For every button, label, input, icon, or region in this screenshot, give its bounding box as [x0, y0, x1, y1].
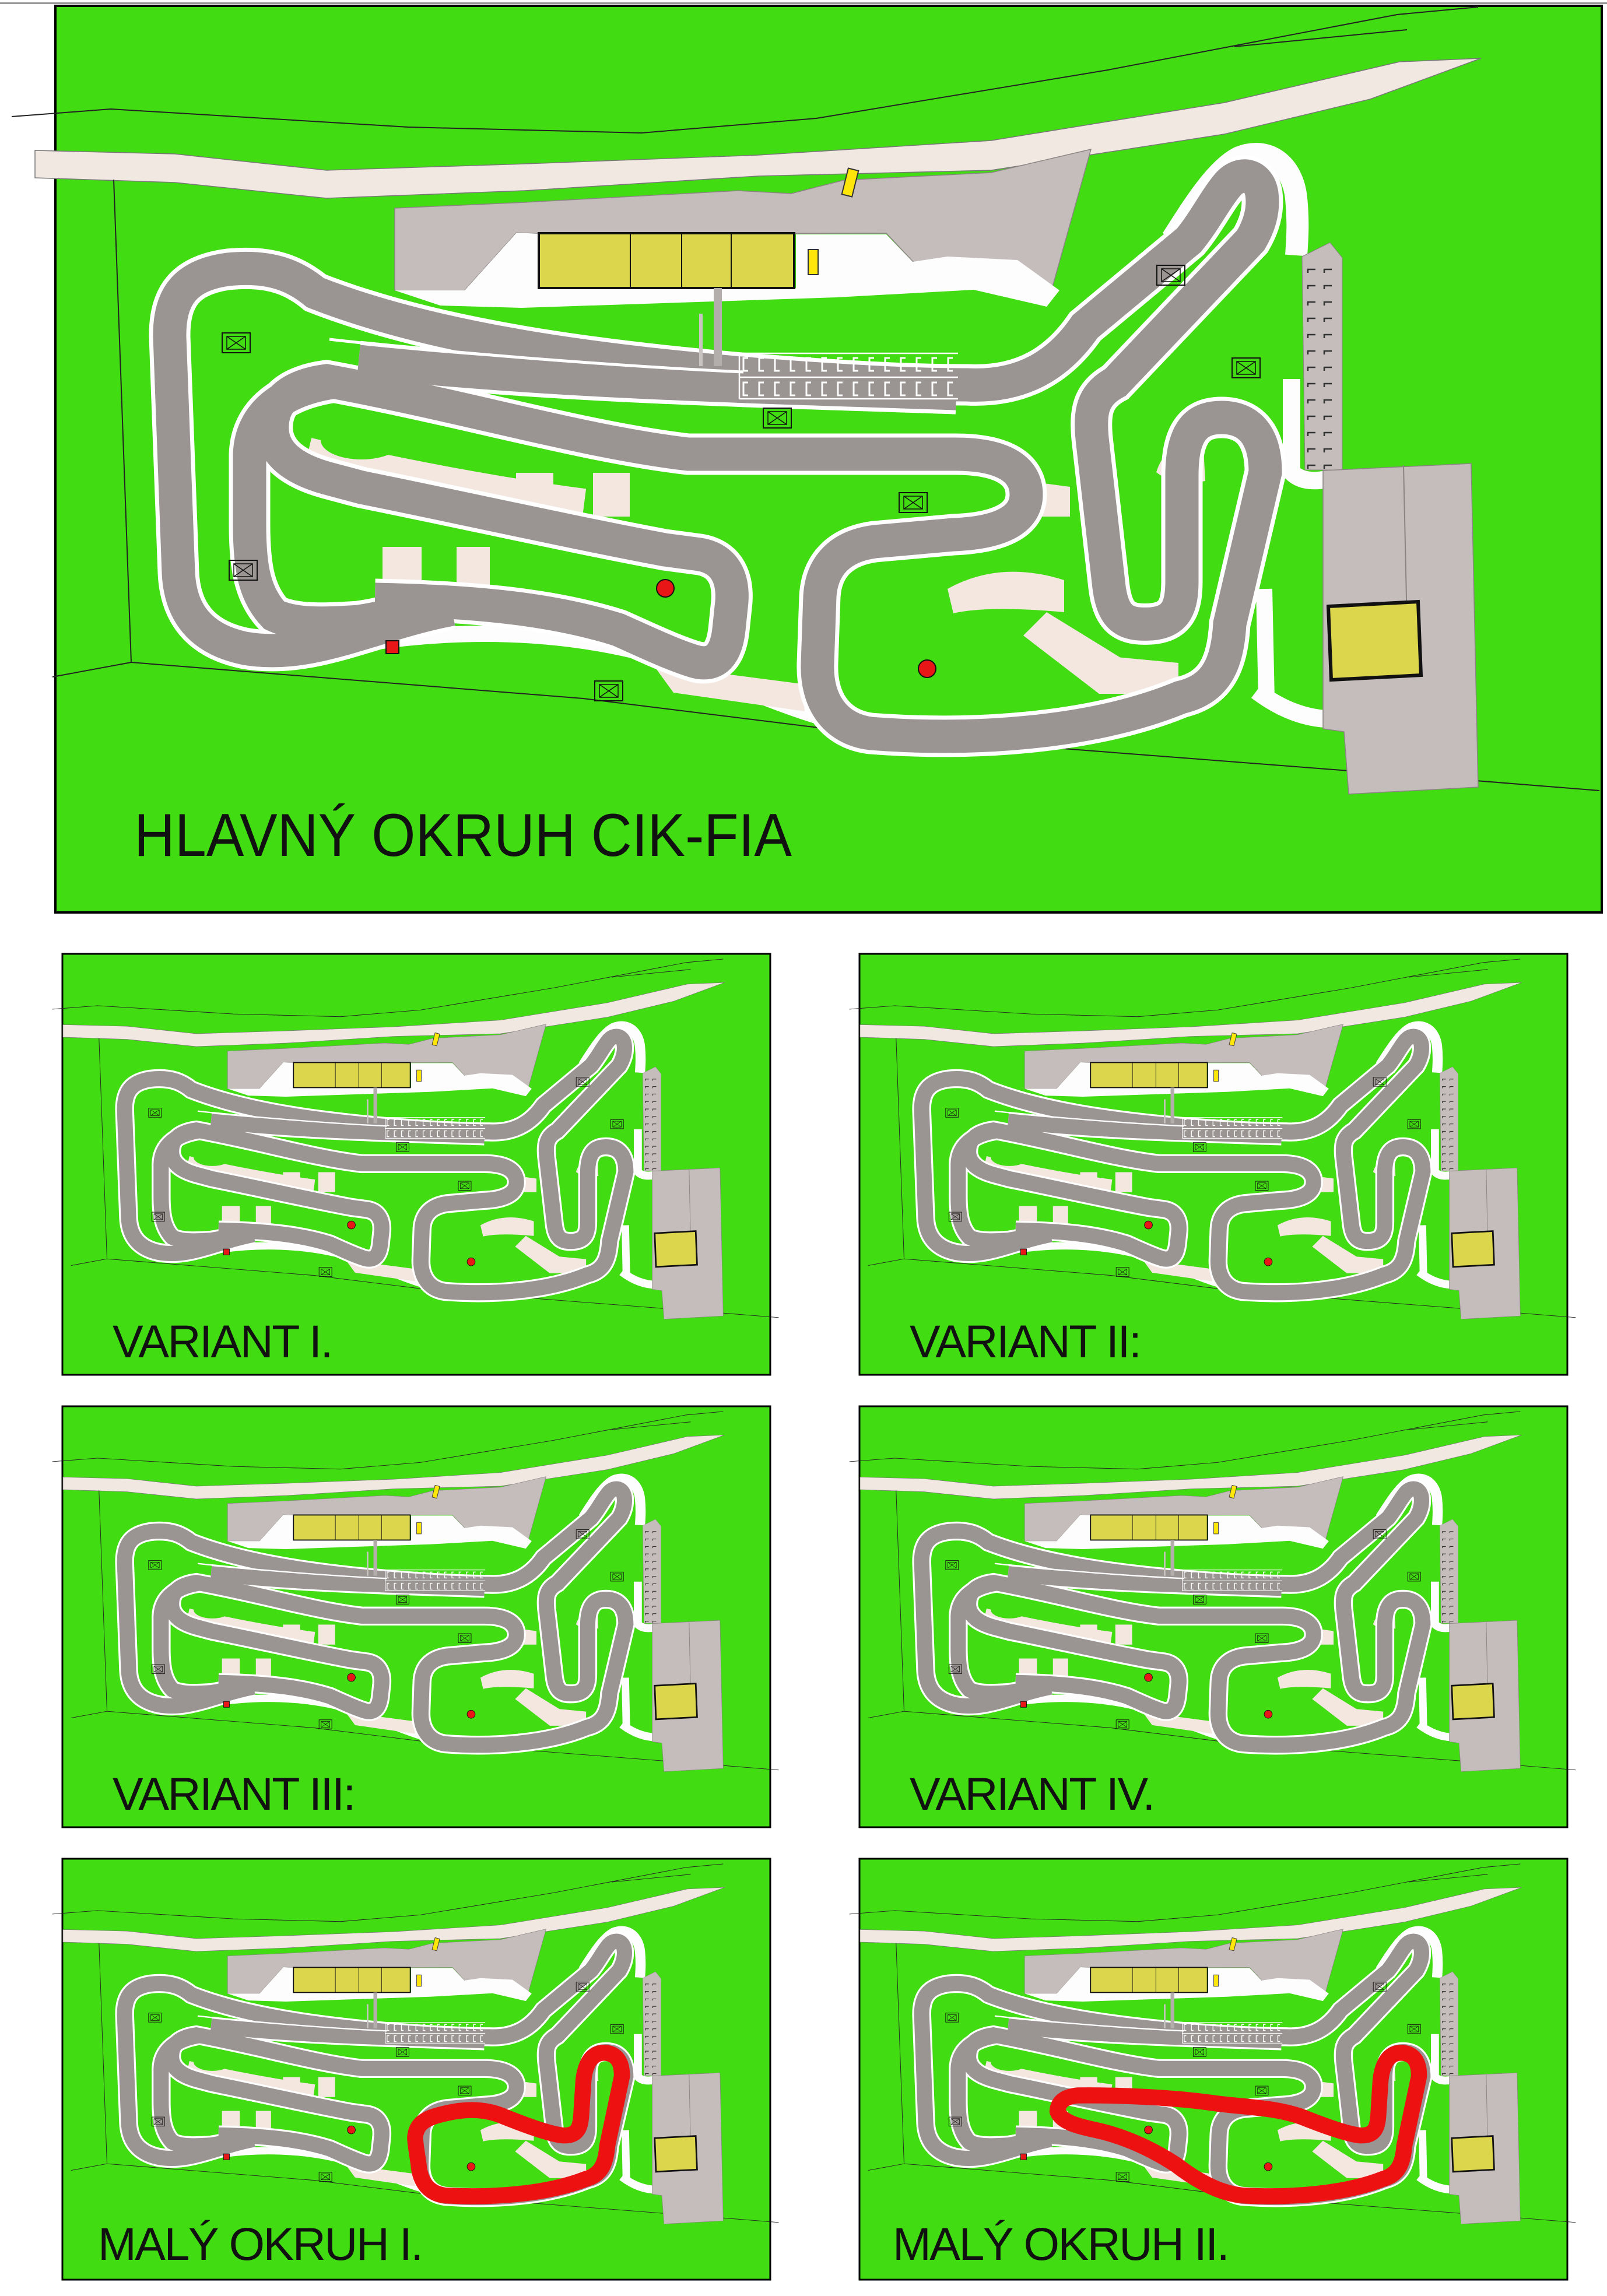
svg-text:VARIANT II:: VARIANT II: [910, 1315, 1140, 1367]
svg-text:HLAVNÝ OKRUH CIK-FIA: HLAVNÝ OKRUH CIK-FIA [134, 802, 792, 869]
svg-text:VARIANT III:: VARIANT III: [113, 1768, 355, 1820]
svg-text:VARIANT I.: VARIANT I. [113, 1315, 332, 1367]
svg-text:MALÝ OKRUH II.: MALÝ OKRUH II. [893, 2218, 1228, 2270]
svg-text:VARIANT IV.: VARIANT IV. [910, 1768, 1154, 1820]
svg-text:MALÝ OKRUH I.: MALÝ OKRUH I. [98, 2218, 422, 2270]
